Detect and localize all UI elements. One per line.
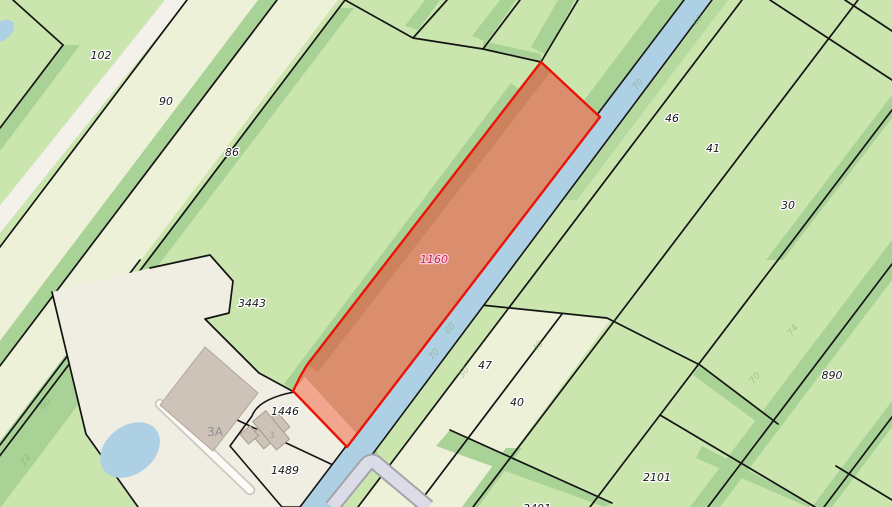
parcel-label-3: 3 — [269, 431, 275, 441]
parcel-label-2101: 2101 — [643, 471, 671, 484]
parcel-label-102: 102 — [91, 49, 112, 62]
cadastral-map-canvas[interactable]: 40708070307470409074 1029086344311604641… — [0, 0, 892, 507]
parcel-label-47: 47 — [478, 359, 492, 372]
parcel-label-1489: 1489 — [271, 464, 299, 477]
parcel-label-890: 890 — [822, 369, 843, 382]
parcel-label-3443: 3443 — [238, 297, 266, 310]
parcel-label-3A: 3A — [207, 425, 224, 439]
parcel-label-40: 40 — [510, 396, 524, 409]
parcel-label-90: 90 — [159, 95, 173, 108]
parcel-label-46: 46 — [665, 112, 679, 125]
parcel-label-86: 86 — [225, 146, 239, 159]
highlighted-parcel-label-1160: 1160 — [420, 253, 448, 266]
parcel-label-41: 41 — [706, 142, 720, 155]
parcel-label-30: 30 — [781, 199, 795, 212]
map-viewport[interactable]: 40708070307470409074 1029086344311604641… — [0, 0, 892, 507]
parcel-label-2401: 2401 — [523, 502, 551, 507]
parcel-label-1446: 1446 — [271, 405, 299, 418]
